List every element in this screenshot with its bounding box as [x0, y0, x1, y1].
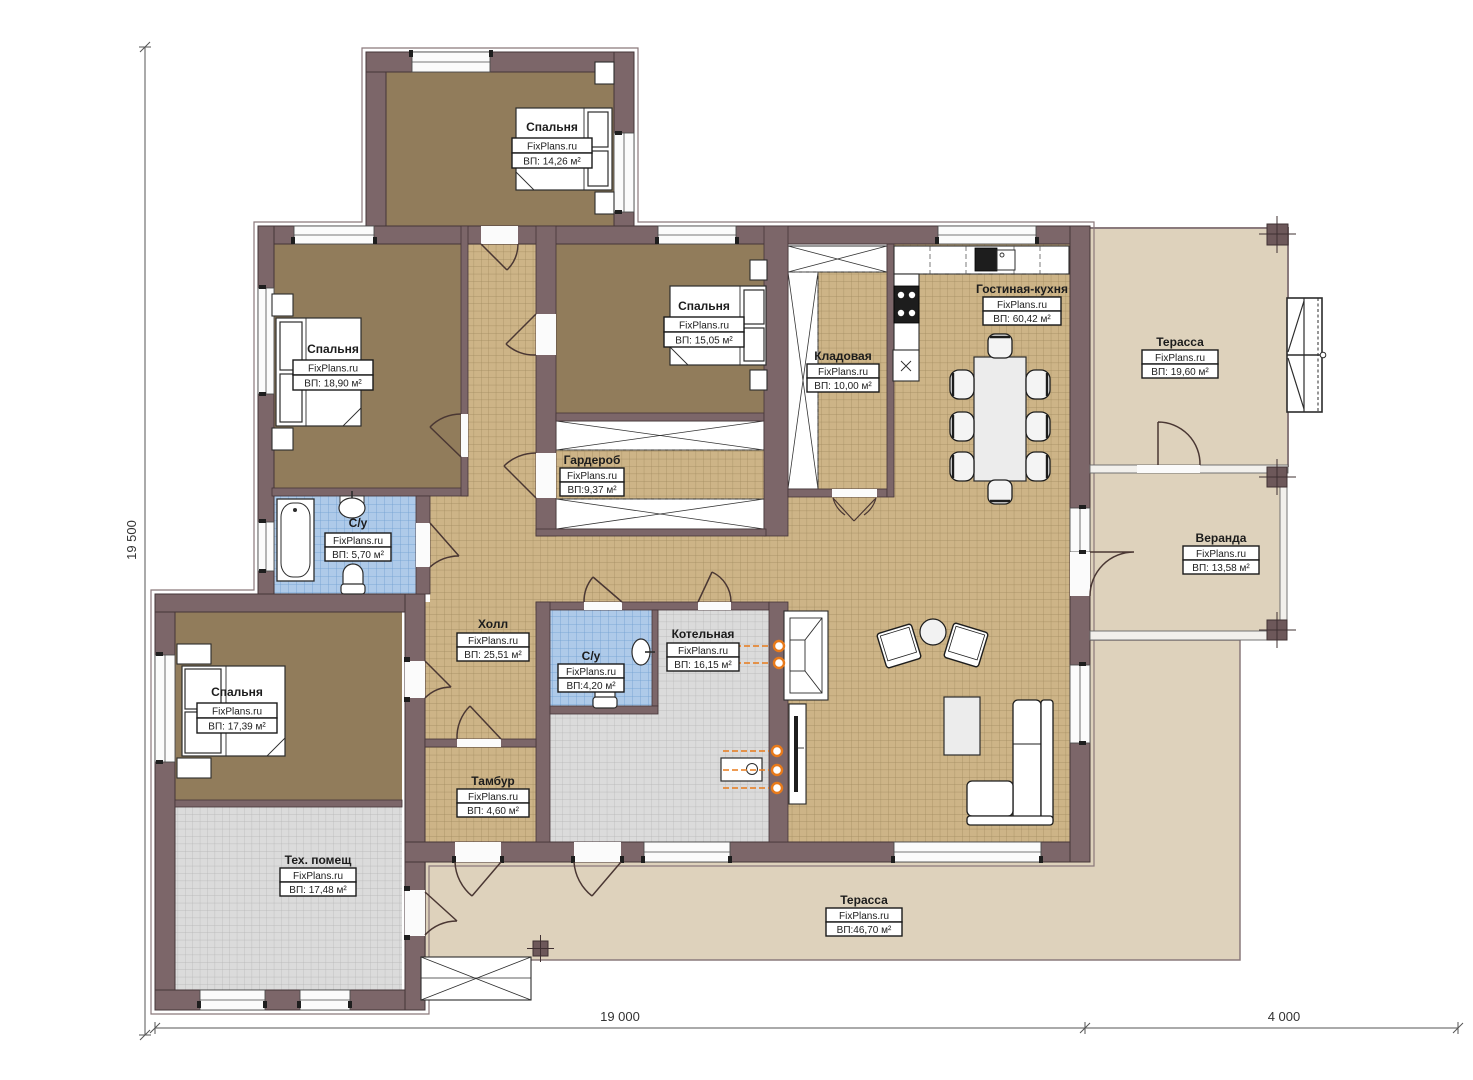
svg-text:Терасса: Терасса	[840, 893, 888, 907]
svg-text:Веранда: Веранда	[1196, 531, 1247, 545]
svg-text:ВП:9,37 м²: ВП:9,37 м²	[567, 485, 617, 496]
svg-text:Тех. помещ: Тех. помещ	[285, 853, 353, 867]
svg-text:FixPlans.ru: FixPlans.ru	[468, 636, 518, 647]
svg-text:Терасса: Терасса	[1156, 335, 1204, 349]
svg-text:Холл: Холл	[478, 617, 508, 631]
svg-text:ВП: 13,58 м²: ВП: 13,58 м²	[1192, 563, 1250, 574]
svg-text:4 000: 4 000	[1268, 1009, 1301, 1024]
svg-text:Спальня: Спальня	[678, 299, 730, 313]
svg-text:С/у: С/у	[349, 516, 368, 530]
svg-text:Котельная: Котельная	[672, 627, 735, 641]
svg-text:FixPlans.ru: FixPlans.ru	[333, 536, 383, 547]
svg-text:Гардероб: Гардероб	[564, 453, 621, 467]
svg-text:ВП: 17,48 м²: ВП: 17,48 м²	[289, 885, 347, 896]
svg-text:Тамбур: Тамбур	[471, 774, 515, 788]
svg-text:FixPlans.ru: FixPlans.ru	[293, 871, 343, 882]
svg-text:ВП: 19,60 м²: ВП: 19,60 м²	[1151, 367, 1209, 378]
svg-text:ВП:46,70 м²: ВП:46,70 м²	[837, 925, 892, 936]
svg-text:ВП: 25,51 м²: ВП: 25,51 м²	[464, 650, 522, 661]
svg-text:FixPlans.ru: FixPlans.ru	[566, 667, 616, 678]
svg-text:ВП: 5,70 м²: ВП: 5,70 м²	[332, 550, 385, 561]
svg-text:FixPlans.ru: FixPlans.ru	[997, 300, 1047, 311]
svg-text:ВП: 10,00 м²: ВП: 10,00 м²	[814, 381, 872, 392]
svg-text:Кладовая: Кладовая	[814, 349, 871, 363]
svg-text:FixPlans.ru: FixPlans.ru	[468, 792, 518, 803]
svg-text:FixPlans.ru: FixPlans.ru	[1196, 549, 1246, 560]
svg-text:ВП: 4,60 м²: ВП: 4,60 м²	[467, 806, 520, 817]
svg-text:ВП: 60,42 м²: ВП: 60,42 м²	[993, 314, 1051, 325]
svg-text:Спальня: Спальня	[211, 685, 263, 699]
svg-text:FixPlans.ru: FixPlans.ru	[839, 911, 889, 922]
svg-text:FixPlans.ru: FixPlans.ru	[678, 646, 728, 657]
svg-text:FixPlans.ru: FixPlans.ru	[212, 707, 262, 718]
svg-text:Гостиная-кухня: Гостиная-кухня	[976, 282, 1068, 296]
svg-text:FixPlans.ru: FixPlans.ru	[1155, 353, 1205, 364]
svg-text:ВП: 15,05 м²: ВП: 15,05 м²	[675, 336, 733, 347]
svg-text:FixPlans.ru: FixPlans.ru	[527, 142, 577, 153]
svg-text:ВП: 17,39 м²: ВП: 17,39 м²	[208, 722, 266, 733]
svg-text:ВП: 16,15 м²: ВП: 16,15 м²	[674, 660, 732, 671]
svg-text:FixPlans.ru: FixPlans.ru	[679, 321, 729, 332]
svg-text:FixPlans.ru: FixPlans.ru	[818, 367, 868, 378]
svg-text:FixPlans.ru: FixPlans.ru	[567, 471, 617, 482]
svg-text:ВП: 18,90 м²: ВП: 18,90 м²	[304, 379, 362, 390]
svg-text:ВП:4,20 м²: ВП:4,20 м²	[566, 681, 616, 692]
svg-text:ВП: 14,26 м²: ВП: 14,26 м²	[523, 157, 581, 168]
svg-text:С/у: С/у	[582, 649, 601, 663]
svg-text:19 000: 19 000	[600, 1009, 640, 1024]
svg-text:Спальня: Спальня	[307, 342, 359, 356]
svg-text:FixPlans.ru: FixPlans.ru	[308, 364, 358, 375]
svg-text:19 500: 19 500	[124, 520, 139, 560]
svg-text:Спальня: Спальня	[526, 120, 578, 134]
